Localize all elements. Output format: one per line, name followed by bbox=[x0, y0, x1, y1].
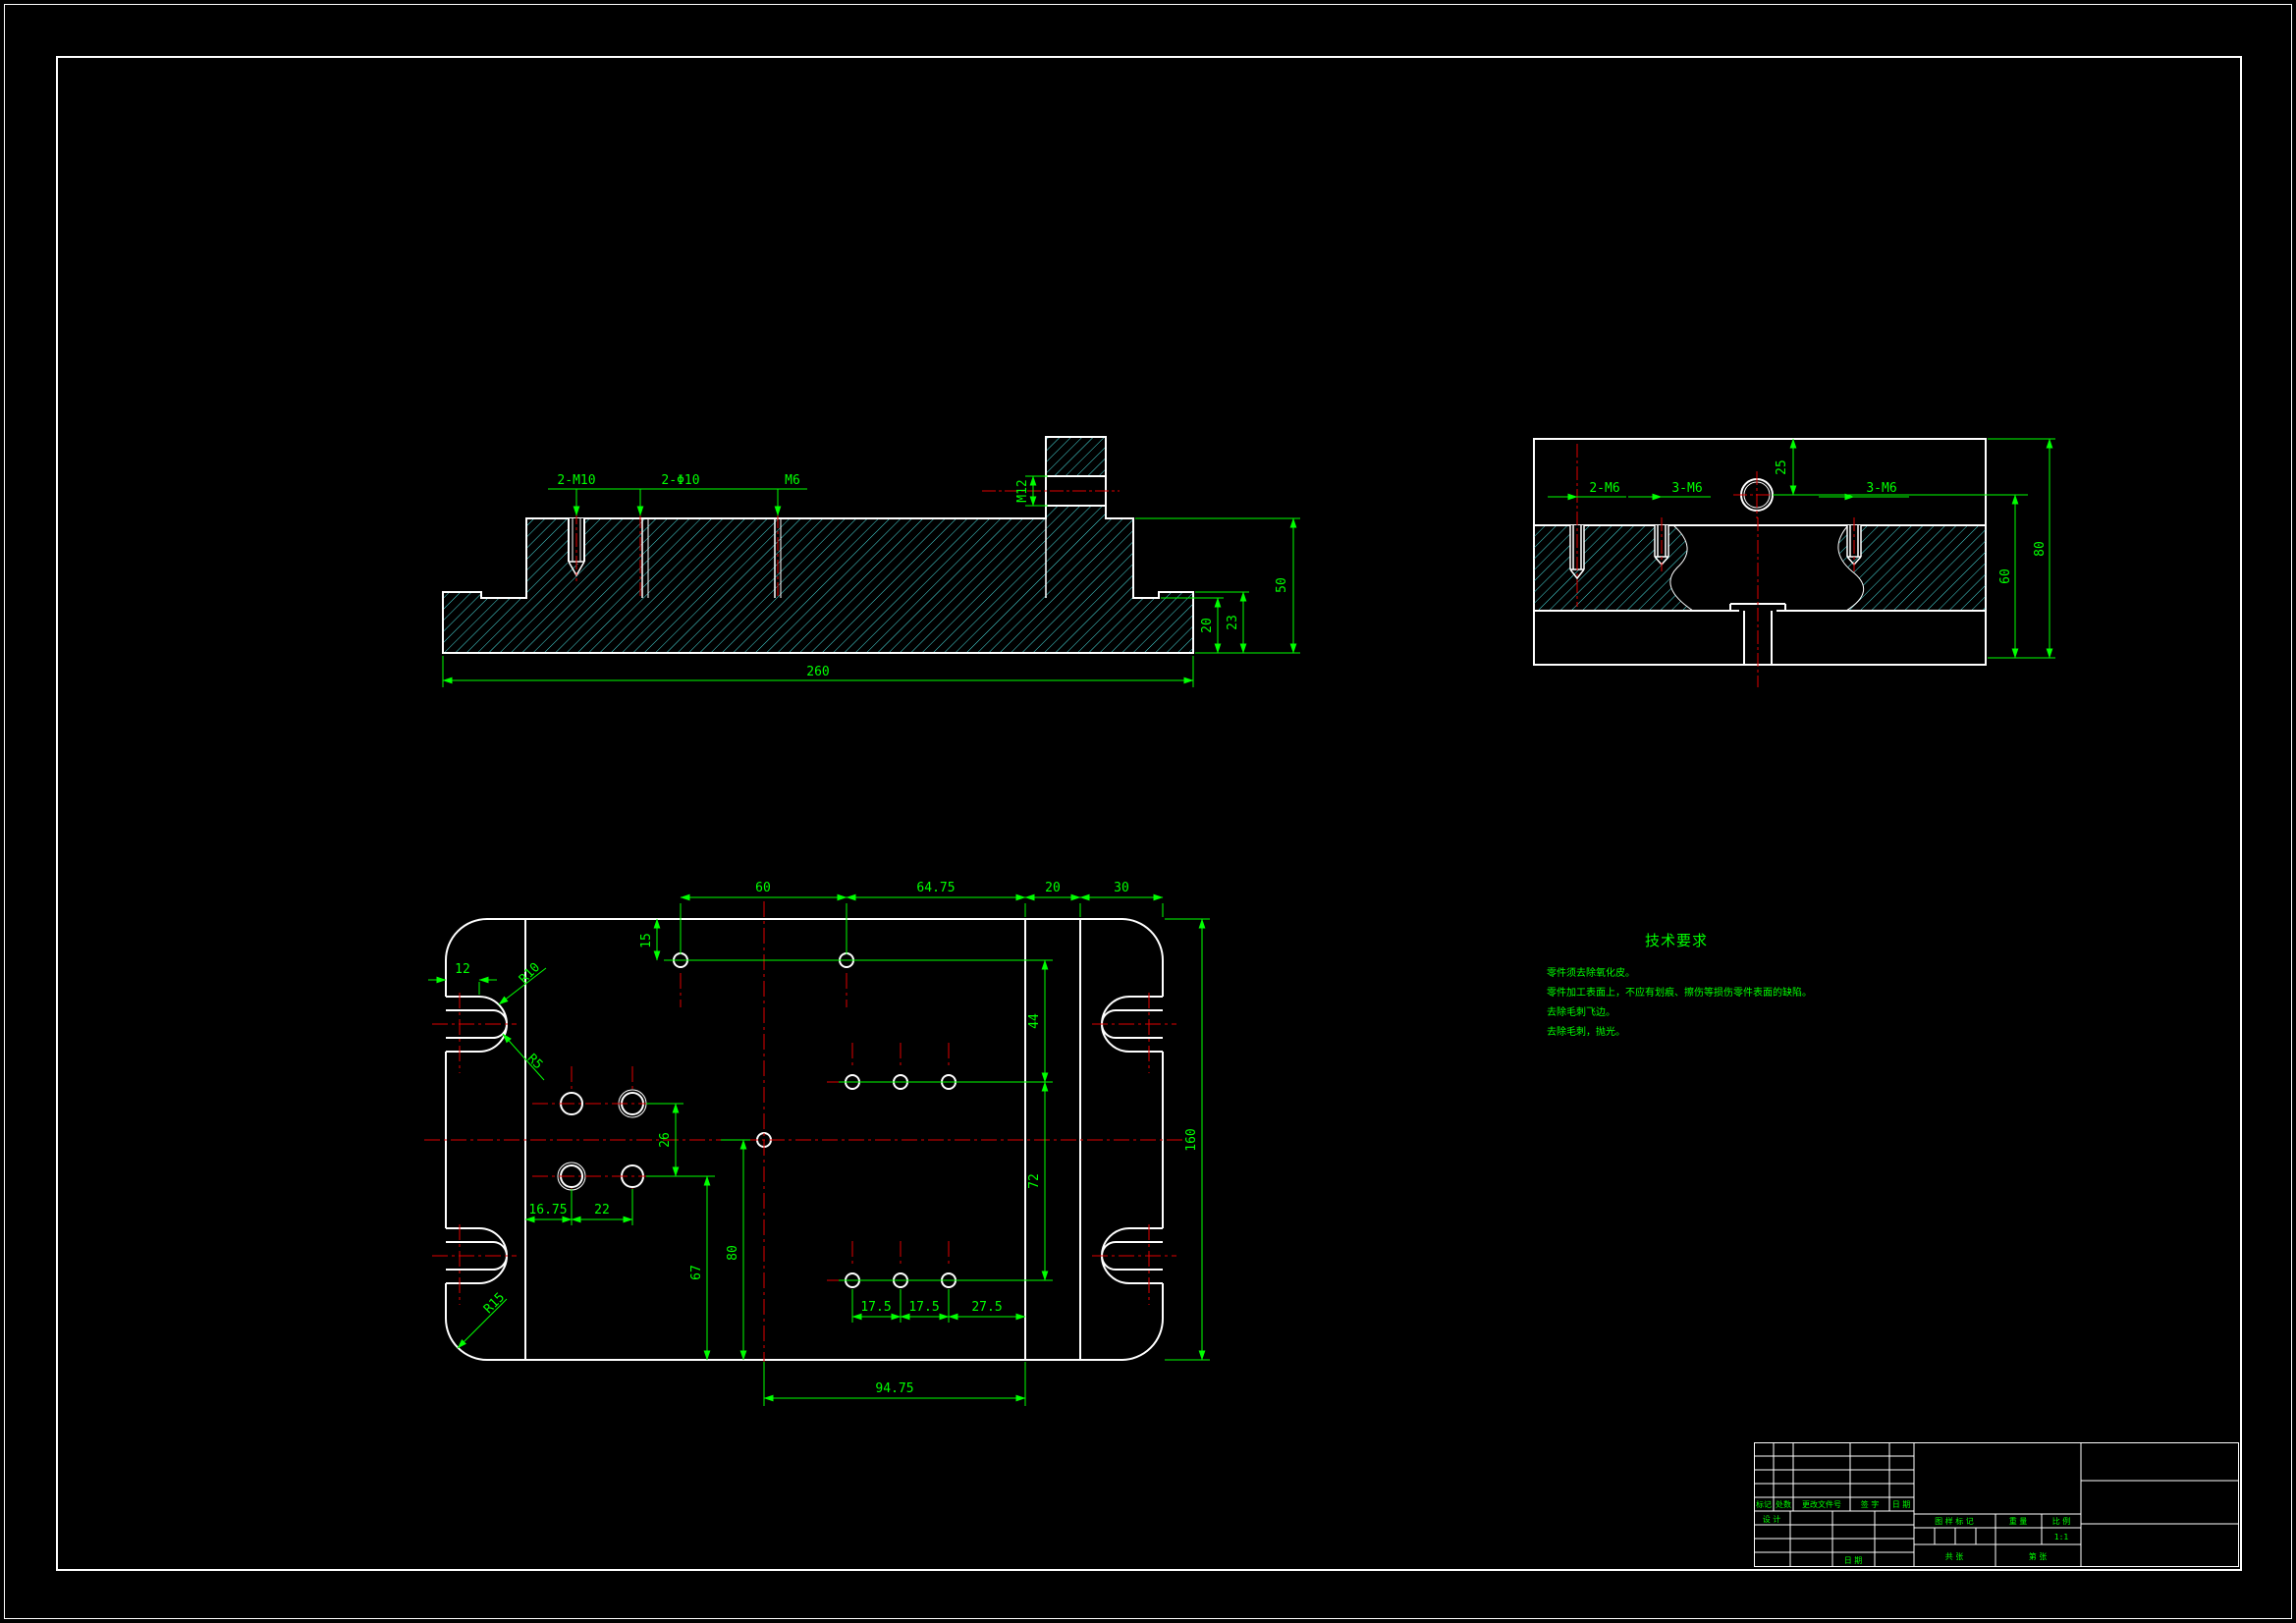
side-dim-25: 25 bbox=[1775, 460, 1789, 475]
tb-header-count: 处数 bbox=[1776, 1499, 1791, 1509]
side-section-view: 2-M6 3-M6 3-M6 25 60 80 bbox=[1524, 424, 2084, 719]
plan-view: 60 64.75 20 30 15 12 R10 R5 R15 44 72 16… bbox=[416, 860, 1320, 1430]
tech-req-line: 零件须去除氧化皮。 bbox=[1547, 964, 1969, 984]
front-label-2m10: 2-M10 bbox=[557, 473, 595, 488]
plan-dim-80: 80 bbox=[726, 1245, 740, 1261]
plan-dim-17-5b: 17.5 bbox=[908, 1300, 939, 1315]
plan-dim-r10: R10 bbox=[517, 960, 543, 987]
plan-centerlines bbox=[424, 901, 1184, 1402]
front-dim-23: 23 bbox=[1226, 615, 1240, 630]
side-label-3m6-right: 3-M6 bbox=[1866, 481, 1896, 496]
side-part-outline bbox=[1534, 439, 1986, 665]
plan-dim-44: 44 bbox=[1027, 1013, 1042, 1029]
tb-sheet-number: 第 张 bbox=[2029, 1551, 2048, 1561]
front-dim-20: 20 bbox=[1200, 618, 1215, 633]
tb-designer-label: 设 计 bbox=[1763, 1514, 1781, 1524]
plan-dim-22: 22 bbox=[594, 1203, 610, 1217]
plan-dim-64-75: 64.75 bbox=[916, 881, 955, 895]
side-label-3m6-left: 3-M6 bbox=[1671, 481, 1702, 496]
side-dim-80: 80 bbox=[2033, 541, 2048, 557]
plan-dim-r5: R5 bbox=[524, 1052, 546, 1073]
front-dim-50: 50 bbox=[1275, 577, 1289, 593]
tb-scale-label: 比 例 bbox=[2052, 1516, 2071, 1526]
plan-dim-160: 160 bbox=[1184, 1128, 1199, 1151]
front-section-view: 2-M10 2-Φ10 M6 M12 20 23 50 260 bbox=[432, 420, 1316, 725]
plan-dim-16-75: 16.75 bbox=[528, 1203, 567, 1217]
tb-header-date: 日 期 bbox=[1892, 1500, 1911, 1509]
tb-header-mark: 标记 bbox=[1756, 1499, 1772, 1509]
cad-drawing-page: 2-M10 2-Φ10 M6 M12 20 23 50 260 bbox=[0, 0, 2296, 1623]
tech-req-line: 去除毛刺，抛光。 bbox=[1547, 1023, 1969, 1043]
front-label-m6: M6 bbox=[785, 473, 800, 488]
front-part-outline bbox=[443, 437, 1193, 653]
tech-req-line: 去除毛刺飞边。 bbox=[1547, 1003, 1969, 1023]
tb-mark-label: 图 样 标 记 bbox=[1935, 1516, 1974, 1526]
front-hole-leaders: 2-M10 2-Φ10 M6 bbox=[548, 473, 807, 515]
plan-dim-15: 15 bbox=[639, 933, 654, 948]
plan-dim-17-5a: 17.5 bbox=[860, 1300, 891, 1315]
technical-requirements: 技术要求 零件须去除氧化皮。 零件加工表面上，不应有划痕、擦伤等损伤零件表面的缺… bbox=[1547, 930, 1969, 1043]
plan-dim-lines bbox=[428, 897, 1210, 1406]
plan-dim-67: 67 bbox=[689, 1265, 704, 1280]
tb-header-sign: 签 字 bbox=[1861, 1499, 1880, 1509]
plan-holes bbox=[558, 953, 956, 1287]
title-block: 标记 处数 更改文件号 签 字 日 期 设 计 日 期 图 样 标 记 重 量 … bbox=[1754, 1442, 2239, 1567]
plan-dim-94-75: 94.75 bbox=[875, 1381, 913, 1396]
plan-dim-r15: R15 bbox=[481, 1290, 508, 1317]
tb-total-sheets: 共 张 bbox=[1945, 1552, 1964, 1561]
tb-scale-value: 1:1 bbox=[2054, 1533, 2069, 1542]
front-label-m12: M12 bbox=[1015, 479, 1030, 502]
front-label-2d10: 2-Φ10 bbox=[661, 473, 699, 488]
plan-dim-60: 60 bbox=[755, 881, 771, 895]
tech-req-title: 技术要求 bbox=[1645, 930, 1969, 950]
tech-req-line: 零件加工表面上，不应有划痕、擦伤等损伤零件表面的缺陷。 bbox=[1547, 984, 1969, 1003]
plan-dim-72: 72 bbox=[1027, 1173, 1042, 1189]
tb-weight-label: 重 量 bbox=[2009, 1516, 2028, 1526]
plan-dim-12: 12 bbox=[455, 962, 470, 977]
side-label-2m6: 2-M6 bbox=[1589, 481, 1619, 496]
plan-dim-27-5: 27.5 bbox=[971, 1300, 1002, 1315]
tb-header-docno: 更改文件号 bbox=[1802, 1499, 1841, 1509]
plan-dim-26: 26 bbox=[658, 1132, 673, 1148]
front-dim-260: 260 bbox=[806, 665, 829, 679]
tb-date-label: 日 期 bbox=[1844, 1556, 1863, 1565]
plan-dim-20: 20 bbox=[1045, 881, 1061, 895]
plan-dim-30: 30 bbox=[1114, 881, 1129, 895]
side-dim-60: 60 bbox=[1998, 568, 2013, 584]
